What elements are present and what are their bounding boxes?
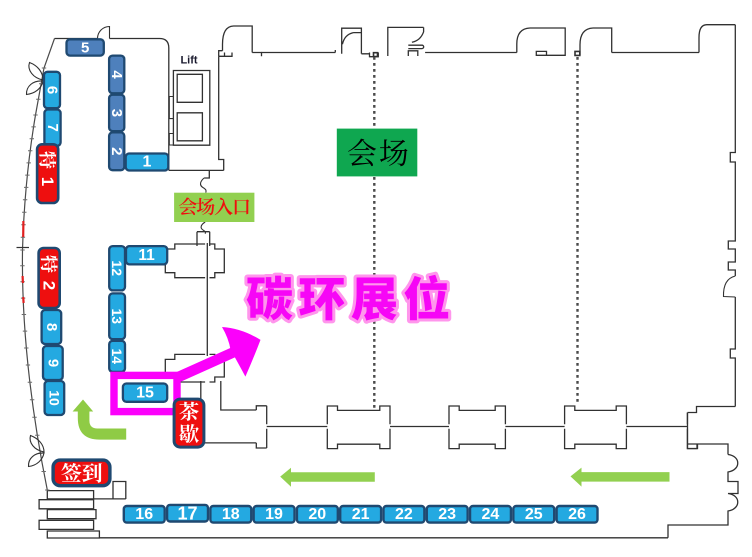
svg-text:25: 25	[525, 506, 543, 523]
svg-text:10: 10	[46, 390, 62, 406]
svg-text:9: 9	[44, 359, 61, 367]
svg-text:16: 16	[135, 506, 153, 523]
svg-text:3: 3	[108, 109, 125, 117]
svg-text:13: 13	[109, 309, 125, 325]
svg-text:6: 6	[44, 86, 61, 94]
svg-text:7: 7	[44, 124, 61, 132]
svg-text:20: 20	[308, 506, 326, 523]
svg-text:5: 5	[81, 40, 89, 57]
svg-text:2: 2	[40, 281, 59, 290]
svg-text:21: 21	[352, 506, 370, 523]
svg-text:14: 14	[109, 349, 125, 365]
svg-text:22: 22	[395, 506, 413, 523]
svg-text:Lift: Lift	[180, 55, 197, 67]
svg-text:11: 11	[138, 247, 155, 264]
svg-text:8: 8	[43, 323, 60, 331]
svg-text:1: 1	[143, 154, 152, 171]
svg-text:18: 18	[222, 506, 240, 523]
svg-text:2: 2	[108, 147, 125, 155]
svg-text:19: 19	[265, 506, 283, 523]
svg-text:23: 23	[438, 506, 456, 523]
svg-text:15: 15	[136, 384, 154, 401]
svg-text:26: 26	[568, 506, 586, 523]
svg-text:12: 12	[109, 260, 125, 276]
svg-text:1: 1	[38, 177, 57, 186]
svg-text:17: 17	[177, 504, 197, 524]
svg-text:24: 24	[482, 506, 500, 523]
svg-text:4: 4	[108, 70, 125, 79]
